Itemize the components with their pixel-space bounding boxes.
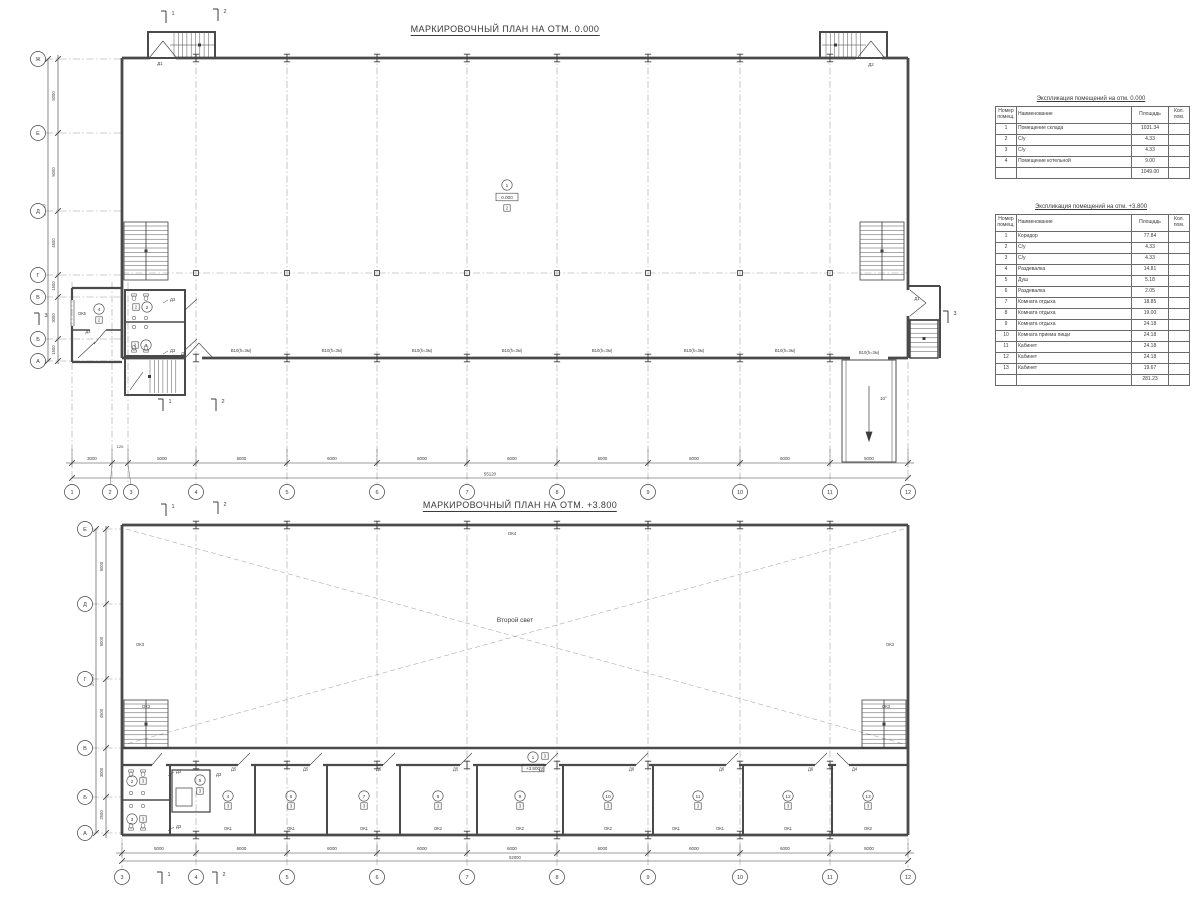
grid-bubble-row-label: Б [83,795,87,801]
door-swing [150,41,176,57]
table-row: 1Помещение склада1031.34 [996,124,1190,135]
table-cell: 4.33 [1132,146,1169,157]
finish-type-label: 2 [98,318,101,323]
door-label: Д6 [808,767,814,772]
dim-text: 6000 [598,846,608,851]
dim-text: 6000 [689,846,699,851]
door-label: Д2 [868,62,874,67]
table-cell: Кабинет [1017,364,1132,375]
shower-cabin [176,788,192,806]
table-cell: 24.18 [1132,353,1169,364]
door-swing [460,753,472,765]
plan1-title: МАРКИРОВОЧНЫЙ ПЛАН НА ОТМ. 0.000 [411,24,600,36]
stair-landing-mark [145,250,148,253]
dim-text: 1500 [51,345,56,355]
table-row: 7Комната отдыха18.85 [996,298,1190,309]
grid-bubble-col-label: 4 [194,490,197,496]
table-cell: 2.05 [1132,287,1169,298]
dim-text: 2500 [99,810,104,820]
elevation-label: 0.000 [501,195,513,200]
table-cell [1169,157,1190,168]
table-cell: Помещение котельной [1017,157,1132,168]
dim-text: 6000 [237,456,247,461]
finish-type-label: 3 [867,804,870,809]
table-cell: Раздевалка [1017,287,1132,298]
dim-total-text: 55120 [484,472,497,477]
grid-bubble-row-label: Г [84,677,87,683]
table-total-cell [996,168,1017,179]
room-number-label: 3 [131,817,134,823]
table-cell: 8 [996,309,1017,320]
table-row: 9Комната отдыха24.18 [996,320,1190,331]
table-total-row: 281.23 [996,375,1190,386]
sink-fixture [141,791,145,795]
table-cell: 4.33 [1132,254,1169,265]
table-cell: 4.33 [1132,243,1169,254]
column-header: Кол. пом. [1169,215,1190,232]
table-cell [1169,320,1190,331]
table-cell [1169,276,1190,287]
grid-bubble-col-label: 9 [646,875,649,881]
door-label: Д4 [852,767,858,772]
window-label: В10(h=3м) [502,348,523,353]
door-label: Д3 [170,348,176,353]
window-label: ОК2 [434,826,443,831]
room-schedule-table: Экспликация помещений на отм. 0.000Номер… [995,96,1187,179]
table-cell: Комната отдыха [1017,298,1132,309]
dim-text: 3000 [87,456,97,461]
grid-bubble-col-label: 7 [465,490,468,496]
grid-bubble-row-label: Ж [35,57,40,63]
table-cell: 1 [996,232,1017,243]
window-label: ОК2 [864,826,873,831]
door-swing [152,753,162,765]
stair-landing-mark [148,375,151,378]
grid-bubble-col-label: 9 [646,490,649,496]
table-row: 12Кабинет24.18 [996,353,1190,364]
sink-fixture [129,804,133,808]
grid-bubble-col-label: 7 [465,875,468,881]
window-label: ОК3 [136,642,145,647]
door-label: Д1 [181,351,187,356]
table-row: 2С/у4.33 [996,243,1190,254]
window-label: В10(h=3м) [859,350,880,355]
table-cell: Душ [1017,276,1132,287]
table-cell [1169,254,1190,265]
grid-bubble-row-label: В [83,746,87,752]
wc-fixture [144,296,148,301]
grid-bubble-col-label: 2 [108,490,111,496]
finish-type-label: 3 [227,804,230,809]
dim-text: 3000 [51,313,56,323]
table-row: 3С/у4.33 [996,146,1190,157]
dim-text: 120 [117,444,124,449]
table-cell: 2 [996,135,1017,146]
table-title: Экспликация помещений на отм. +3.800 [995,204,1187,210]
table-cell: 18.85 [1132,298,1169,309]
table-row: 3С/у4.33 [996,254,1190,265]
door-swing [185,299,197,350]
finish-type-label: 3 [437,804,440,809]
table-row: 10Комната приема пищи24.18 [996,331,1190,342]
window-label: ОК3 [886,642,895,647]
sink-fixture [129,791,133,795]
table-cell: Кабинет [1017,353,1132,364]
finish-type-label: 3 [142,817,145,822]
room-number-label: 4 [227,794,230,800]
grid-bubble-row-label: Е [36,131,40,137]
section-flag-label: 2 [223,872,226,878]
dim-text: 5000 [51,91,56,101]
dim-text: 6000 [327,456,337,461]
grid-bubble-col-label: 6 [375,875,378,881]
section-flag-label: 3 [45,313,48,319]
table-cell: С/у [1017,243,1132,254]
ramp-angle-label: 10° [880,396,887,401]
stair-landing-mark [881,250,884,253]
leader-line [163,300,168,303]
grid-bubble-row-label: Б [36,337,40,343]
window-label: ОК2 [604,826,613,831]
door-label: Д3 [170,297,176,302]
room-number-label: 9 [519,794,522,800]
grid-bubble-col-label: 3 [129,490,132,496]
table-total-cell [996,375,1017,386]
window-label: ОК5 [78,311,87,316]
ramp-arrow-head [866,432,872,441]
dim-text: 6000 [780,846,790,851]
room-number-label: 4 [98,307,101,313]
table-cell [1169,364,1190,375]
table-cell: 14.81 [1132,265,1169,276]
table-cell: Комната приема пищи [1017,331,1132,342]
table-cell: 6 [996,287,1017,298]
room-number-label: 1 [532,755,535,761]
table-cell: 9.00 [1132,157,1169,168]
grid-bubble-col-label: 1 [70,490,73,496]
dim-text: 6000 [507,456,517,461]
grid-bubble-col-label: 12 [905,875,911,881]
table-cell: 10 [996,331,1017,342]
sink-fixture [132,316,136,320]
dim-text: 6000 [417,456,427,461]
window-label: В10(h=3м) [775,348,796,353]
grid-bubble-row-label: Д [36,209,40,215]
column-ibeam [193,354,199,362]
dim-text: 6000 [507,846,517,851]
table-row: 4Раздевалка14.81 [996,265,1190,276]
table-cell: 13 [996,364,1017,375]
dim-text: 1500 [51,281,56,291]
void-label: Второй свет [497,616,533,624]
grid-bubble-col-label: 3 [120,875,123,881]
plan2-title: МАРКИРОВОЧНЫЙ ПЛАН НА ОТМ. +3.800 [423,500,617,512]
room-number-label: 3 [145,343,148,349]
table-cell: 11 [996,342,1017,353]
table-row: 4Помещение котельной9.00 [996,157,1190,168]
table-row: 6Раздевалка2.05 [996,287,1190,298]
table-cell: 5 [996,276,1017,287]
room-number-label: 2 [146,305,149,311]
grid-bubble-col-label: 4 [194,875,197,881]
table-cell: 4 [996,157,1017,168]
drawing-sheet: Д112Д210.0002ОК542Д42223Д3Д3Д1123Д1310°В… [0,0,1200,900]
door-swing [78,342,95,358]
window-label: В10(h=3м) [592,348,613,353]
table-total-cell [1017,168,1132,179]
grid-bubble-col-label: 6 [375,490,378,496]
column-ibeam [464,761,470,769]
room-number-label: 13 [865,794,871,800]
table-total-cell [1169,375,1190,386]
table-cell: 77.84 [1132,232,1169,243]
window-label: В10(h=3м) [684,348,705,353]
table-row: 5Душ5.18 [996,276,1190,287]
stair-treads [150,360,176,393]
dim-text: 5000 [99,561,104,571]
sink-fixture [144,316,148,320]
grid-bubble-col-label: 11 [827,875,833,881]
table-cell: 24.18 [1132,320,1169,331]
section-flag-label: 3 [954,311,957,317]
section-flag-label: 2 [222,399,225,405]
wc-fixture [141,772,145,777]
table-cell [1169,135,1190,146]
grid-bubble-row-label: Д [83,602,87,608]
stair-landing-mark [883,723,886,726]
table-cell: 3 [996,254,1017,265]
table-cell: 19.67 [1132,364,1169,375]
grid-bubble-col-label: 10 [737,875,743,881]
table-row: 13Кабинет19.67 [996,364,1190,375]
dim-text: 5000 [99,636,104,646]
sink-fixture [144,325,148,329]
table-cell: Кабинет [1017,342,1132,353]
door-label: Д5 [231,767,237,772]
finish-type-label: 3 [607,804,610,809]
grid-bubble-row-label: Г [37,273,40,279]
table-total-row: 1049.00 [996,168,1190,179]
dim-text: 6000 [237,846,247,851]
dim-text: 3000 [99,767,104,777]
door-swing [310,753,322,765]
table-cell [1169,309,1190,320]
elevation-label: +3.800 [526,766,541,771]
stair-landing-mark [834,44,837,47]
table-cell [1169,298,1190,309]
finish-type-label: 3 [142,779,145,784]
window-label: ОК1 [716,826,725,831]
finish-type-label: 3 [544,754,547,759]
room-number-label: 6 [290,794,293,800]
table-cell: 5.18 [1132,276,1169,287]
table-cell: 1 [996,124,1017,135]
column-header: Кол. пом. [1169,107,1190,124]
door-swing [837,753,849,765]
door-label: Д3 [216,772,222,777]
bubble-leader [110,465,112,485]
finish-type-label: 3 [787,804,790,809]
window-label: ОК1 [224,826,233,831]
table-cell [1169,353,1190,364]
grid-bubble-col-label: 10 [737,490,743,496]
window-label: ОК4 [508,531,517,536]
window-label: ОК1 [287,826,296,831]
column-header: Площадь [1132,215,1169,232]
window-label: ОК1 [784,826,793,831]
door-label: Д5 [453,767,459,772]
column-header: Наименование [1017,107,1132,124]
dim-text: 4500 [99,708,104,718]
door-swing [910,290,926,316]
window-label: ОК2 [516,826,525,831]
door-swing [238,753,250,765]
table-total-cell [1017,375,1132,386]
table-cell: С/у [1017,135,1132,146]
column-header: Номер помещ. [996,215,1017,232]
dim-text: 6000 [598,456,608,461]
dim-text: 6000 [327,846,337,851]
section-flag-label: 1 [168,872,171,878]
finish-type-label: 2 [506,206,509,211]
finish-type-label: 3 [697,804,700,809]
table-cell: 4.33 [1132,135,1169,146]
table-row: 1Коридор77.84 [996,232,1190,243]
section-flag-label: 1 [172,11,175,17]
room-number-label: 2 [131,779,134,785]
table-title: Экспликация помещений на отм. 0.000 [995,96,1187,102]
grid-bubble-row-label: А [36,359,40,365]
table-cell [1169,232,1190,243]
void-cross [126,529,904,744]
dim-text: 4500 [51,238,56,248]
dim-total-text: 52000 [509,855,521,860]
table-total-cell: 281.23 [1132,375,1169,386]
table-row: 11Кабинет24.18 [996,342,1190,353]
table-cell: С/у [1017,254,1132,265]
dim-text: 6000 [417,846,427,851]
table-total-cell: 1049.00 [1132,168,1169,179]
room-number-label: 5 [199,778,202,784]
leader-line [163,351,168,354]
table-cell: 9 [996,320,1017,331]
room-number-label: 11 [696,794,701,800]
wc-fixture [132,296,136,301]
dim-text: 5000 [864,456,874,461]
dim-text: 5000 [864,846,874,851]
table-cell [1169,342,1190,353]
table-cell: Раздевалка [1017,265,1132,276]
door-label: Д6 [629,767,635,772]
window-label: ОК1 [672,826,681,831]
stair-landing-mark [198,44,201,47]
grid-bubble-row-label: В [36,295,40,301]
section-flag-label: 2 [224,502,227,508]
section-flag-label: 2 [224,9,227,15]
finish-type-label: 3 [290,804,293,809]
table-cell [1169,331,1190,342]
dim-text: 6000 [780,456,790,461]
grid-bubble-col-label: 12 [905,490,911,496]
door-label: Д5 [303,767,309,772]
column-header: Номер помещ. [996,107,1017,124]
door-label: Д3 [176,824,182,829]
grid-bubble-col-label: 8 [555,875,558,881]
table-cell: 4 [996,265,1017,276]
stair-arrow [130,372,143,390]
column-header: Площадь [1132,107,1169,124]
bubble-leader [128,465,131,485]
finish-type-label: 3 [363,804,366,809]
dim-text: 5000 [157,456,167,461]
table-cell: 3 [996,146,1017,157]
finish-type-label: 3 [199,789,202,794]
table-row: 2С/у4.33 [996,135,1190,146]
window-label: В10(h=3м) [412,348,433,353]
table-cell [1169,124,1190,135]
room-number-label: 7 [363,794,366,800]
section-flag-label: 1 [172,504,175,510]
window-label: ОК1 [360,826,369,831]
window-label: В10(h=3м) [322,348,343,353]
table-cell [1169,287,1190,298]
table-cell: С/у [1017,146,1132,157]
table-cell: 7 [996,298,1017,309]
table-cell: Комната отдыха [1017,309,1132,320]
wc-fixture [141,823,145,828]
door-swing [383,753,395,765]
table-cell [1169,243,1190,254]
grid-bubble-row-label: А [83,831,87,837]
grid-bubble-row-label: Е [83,527,87,533]
door-swing [815,753,827,765]
table-cell: 12 [996,353,1017,364]
grid-bubble-col-label: 8 [555,490,558,496]
table-cell [1169,146,1190,157]
sink-fixture [141,804,145,808]
table-total-cell [1169,168,1190,179]
table-cell: 2 [996,243,1017,254]
room-number-label: 12 [785,794,791,800]
table-cell: 19.00 [1132,309,1169,320]
table-cell: 1031.34 [1132,124,1169,135]
door-label: Д4 [85,329,91,334]
grid-bubble-col-label: 5 [285,875,288,881]
finish-type-label: 3 [519,804,522,809]
dim-text: 5000 [154,846,164,851]
door-label: Д1 [914,296,920,301]
table-cell: 24.18 [1132,331,1169,342]
room-number-label: 1 [506,183,509,189]
stair-landing-mark [145,723,148,726]
stair-landing-mark [923,337,926,340]
door-label: Д6 [719,767,725,772]
finish-type-label: 2 [135,305,138,310]
finish-type-label: 2 [134,343,137,348]
dim-text: 6000 [689,456,699,461]
door-swing [858,41,884,57]
table-cell: Комната отдыха [1017,320,1132,331]
table-row: 8Комната отдыха19.00 [996,309,1190,320]
table-cell: 24.18 [1132,342,1169,353]
table-cell: Помещение склада [1017,124,1132,135]
schedule-grid: Номер помещ.НаименованиеПлощадьКол. пом.… [995,106,1190,179]
grid-bubble-col-label: 5 [285,490,288,496]
door-swing [636,753,648,765]
dim-text: 5000 [51,167,56,177]
grid-bubble-col-label: 11 [827,490,833,496]
room-number-label: 8 [437,794,440,800]
